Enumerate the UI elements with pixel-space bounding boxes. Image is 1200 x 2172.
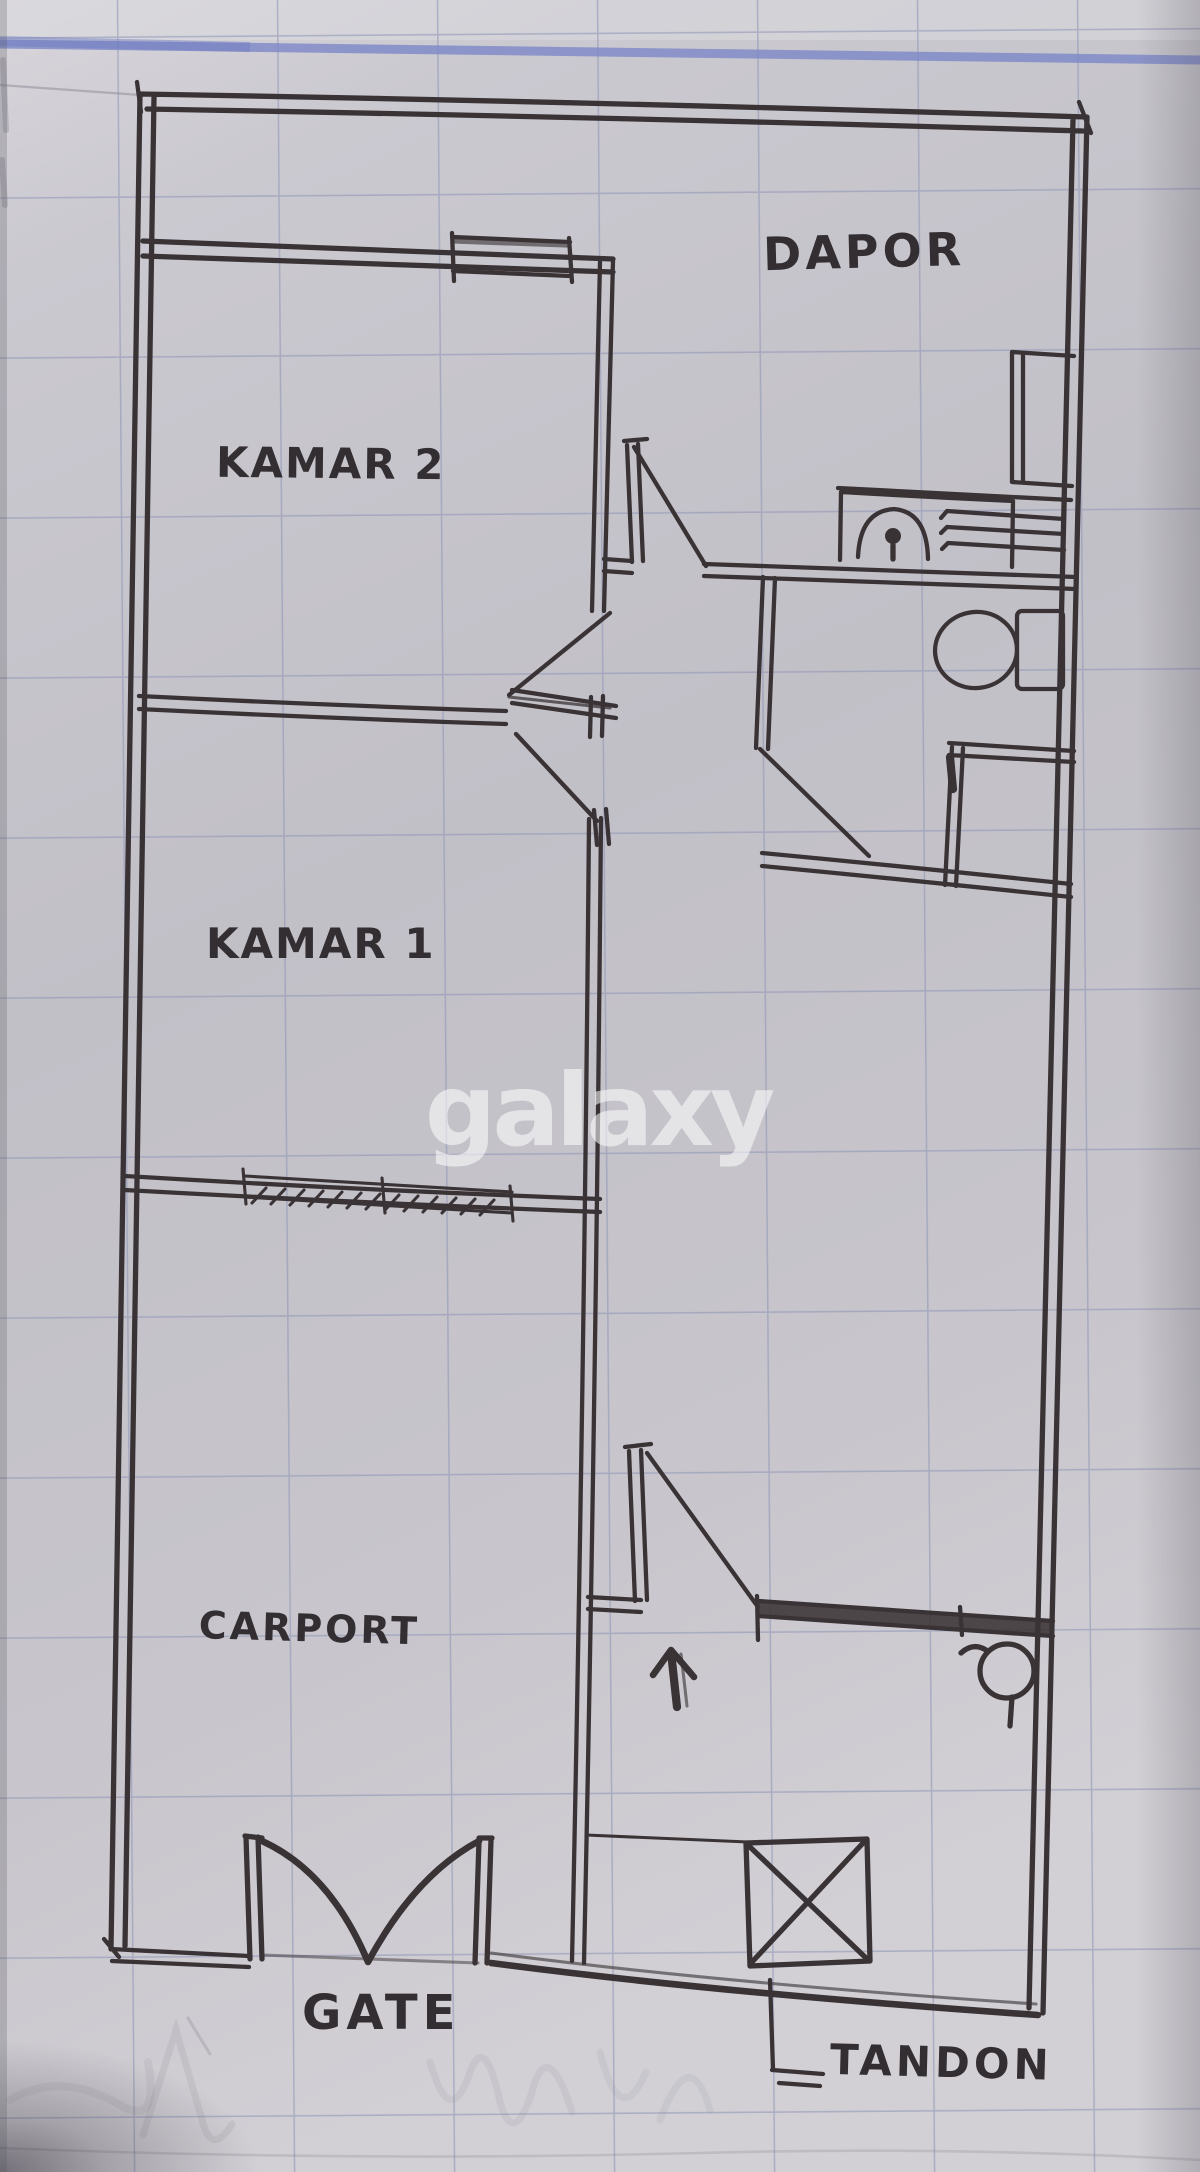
floor-plan-svg: DAPOR KAMAR 2 KAMAR 1 CARPORT GATE TANDO… [0,0,1200,2172]
watermark-text: galaxy [425,1052,774,1169]
label-gate: GATE [302,1985,460,2041]
label-dapor: DAPOR [762,222,965,281]
label-tandon: TANDON [829,2035,1053,2090]
bottom-left-shadow [0,2010,320,2172]
photographed-sketch: DAPOR KAMAR 2 KAMAR 1 CARPORT GATE TANDO… [0,0,1200,2172]
label-carport: CARPORT [198,1603,420,1653]
right-edge-shadow [1138,0,1200,2172]
label-kamar1: KAMAR 1 [206,919,436,968]
left-edge-shade [0,0,7,2172]
label-kamar2: KAMAR 2 [216,438,446,489]
stove-knob [885,528,901,544]
